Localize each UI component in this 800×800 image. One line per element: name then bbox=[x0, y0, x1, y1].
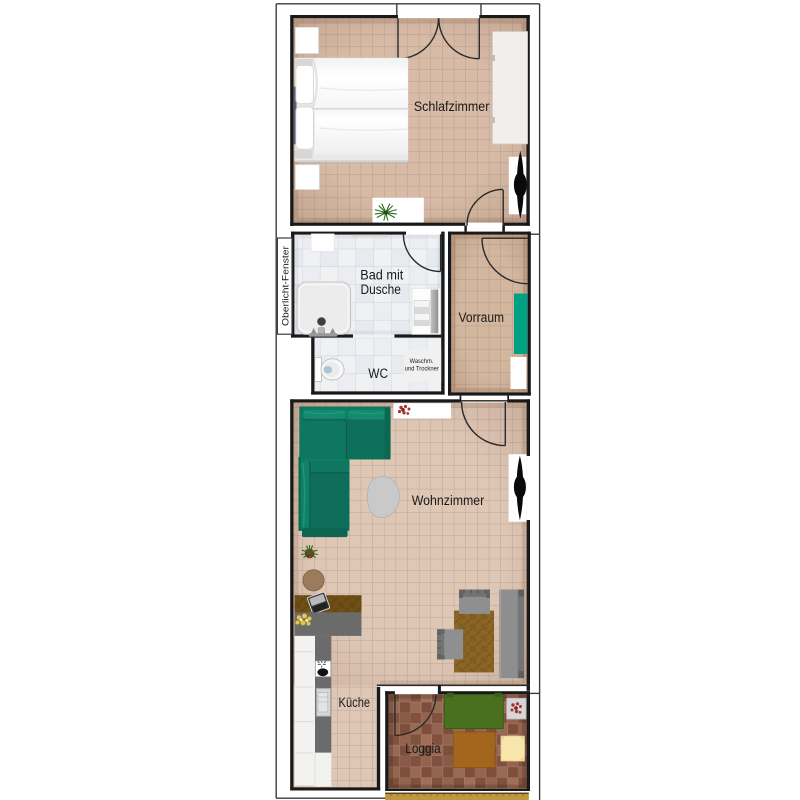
svg-text:Schlafzimmer: Schlafzimmer bbox=[414, 99, 490, 114]
svg-text:und Trockner: und Trockner bbox=[405, 366, 439, 373]
svg-text:WC: WC bbox=[368, 366, 388, 381]
svg-text:Küche: Küche bbox=[339, 695, 371, 710]
svg-text:Oberlicht-Fenster: Oberlicht-Fenster bbox=[280, 246, 290, 326]
svg-text:Loggia: Loggia bbox=[405, 741, 441, 756]
svg-text:Wohnzimmer: Wohnzimmer bbox=[412, 493, 485, 508]
svg-text:Dusche: Dusche bbox=[360, 282, 401, 297]
svg-text:Vorraum: Vorraum bbox=[459, 310, 505, 325]
svg-text:Waschm.: Waschm. bbox=[410, 358, 434, 365]
svg-text:Bad mit: Bad mit bbox=[360, 268, 403, 283]
